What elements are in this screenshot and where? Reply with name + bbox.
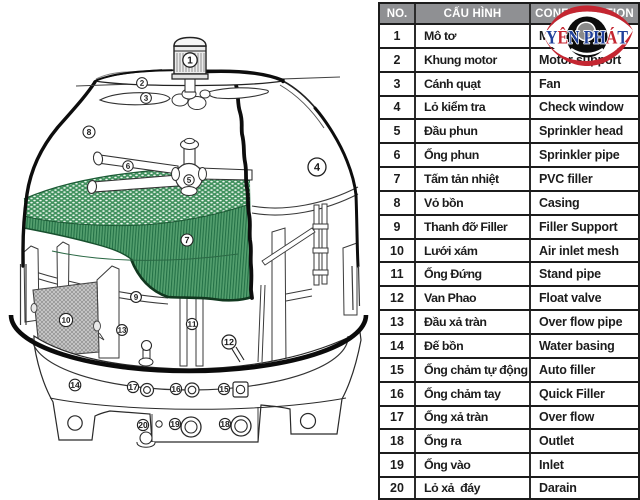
svg-text:YÊN PHÁT: YÊN PHÁT bbox=[546, 27, 629, 49]
